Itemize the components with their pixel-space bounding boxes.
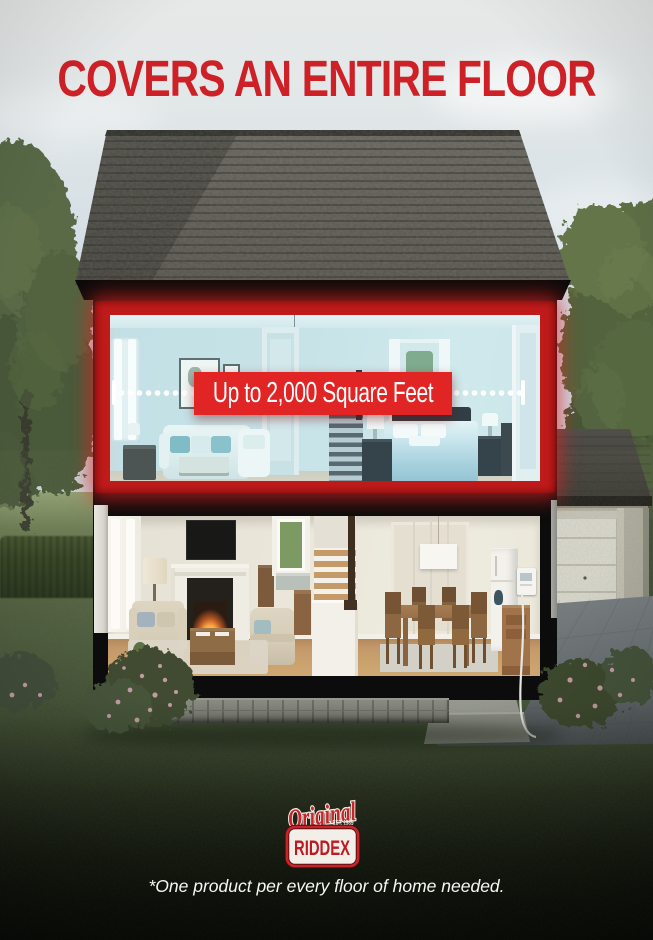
svg-text:RIDDEX: RIDDEX	[294, 837, 350, 860]
